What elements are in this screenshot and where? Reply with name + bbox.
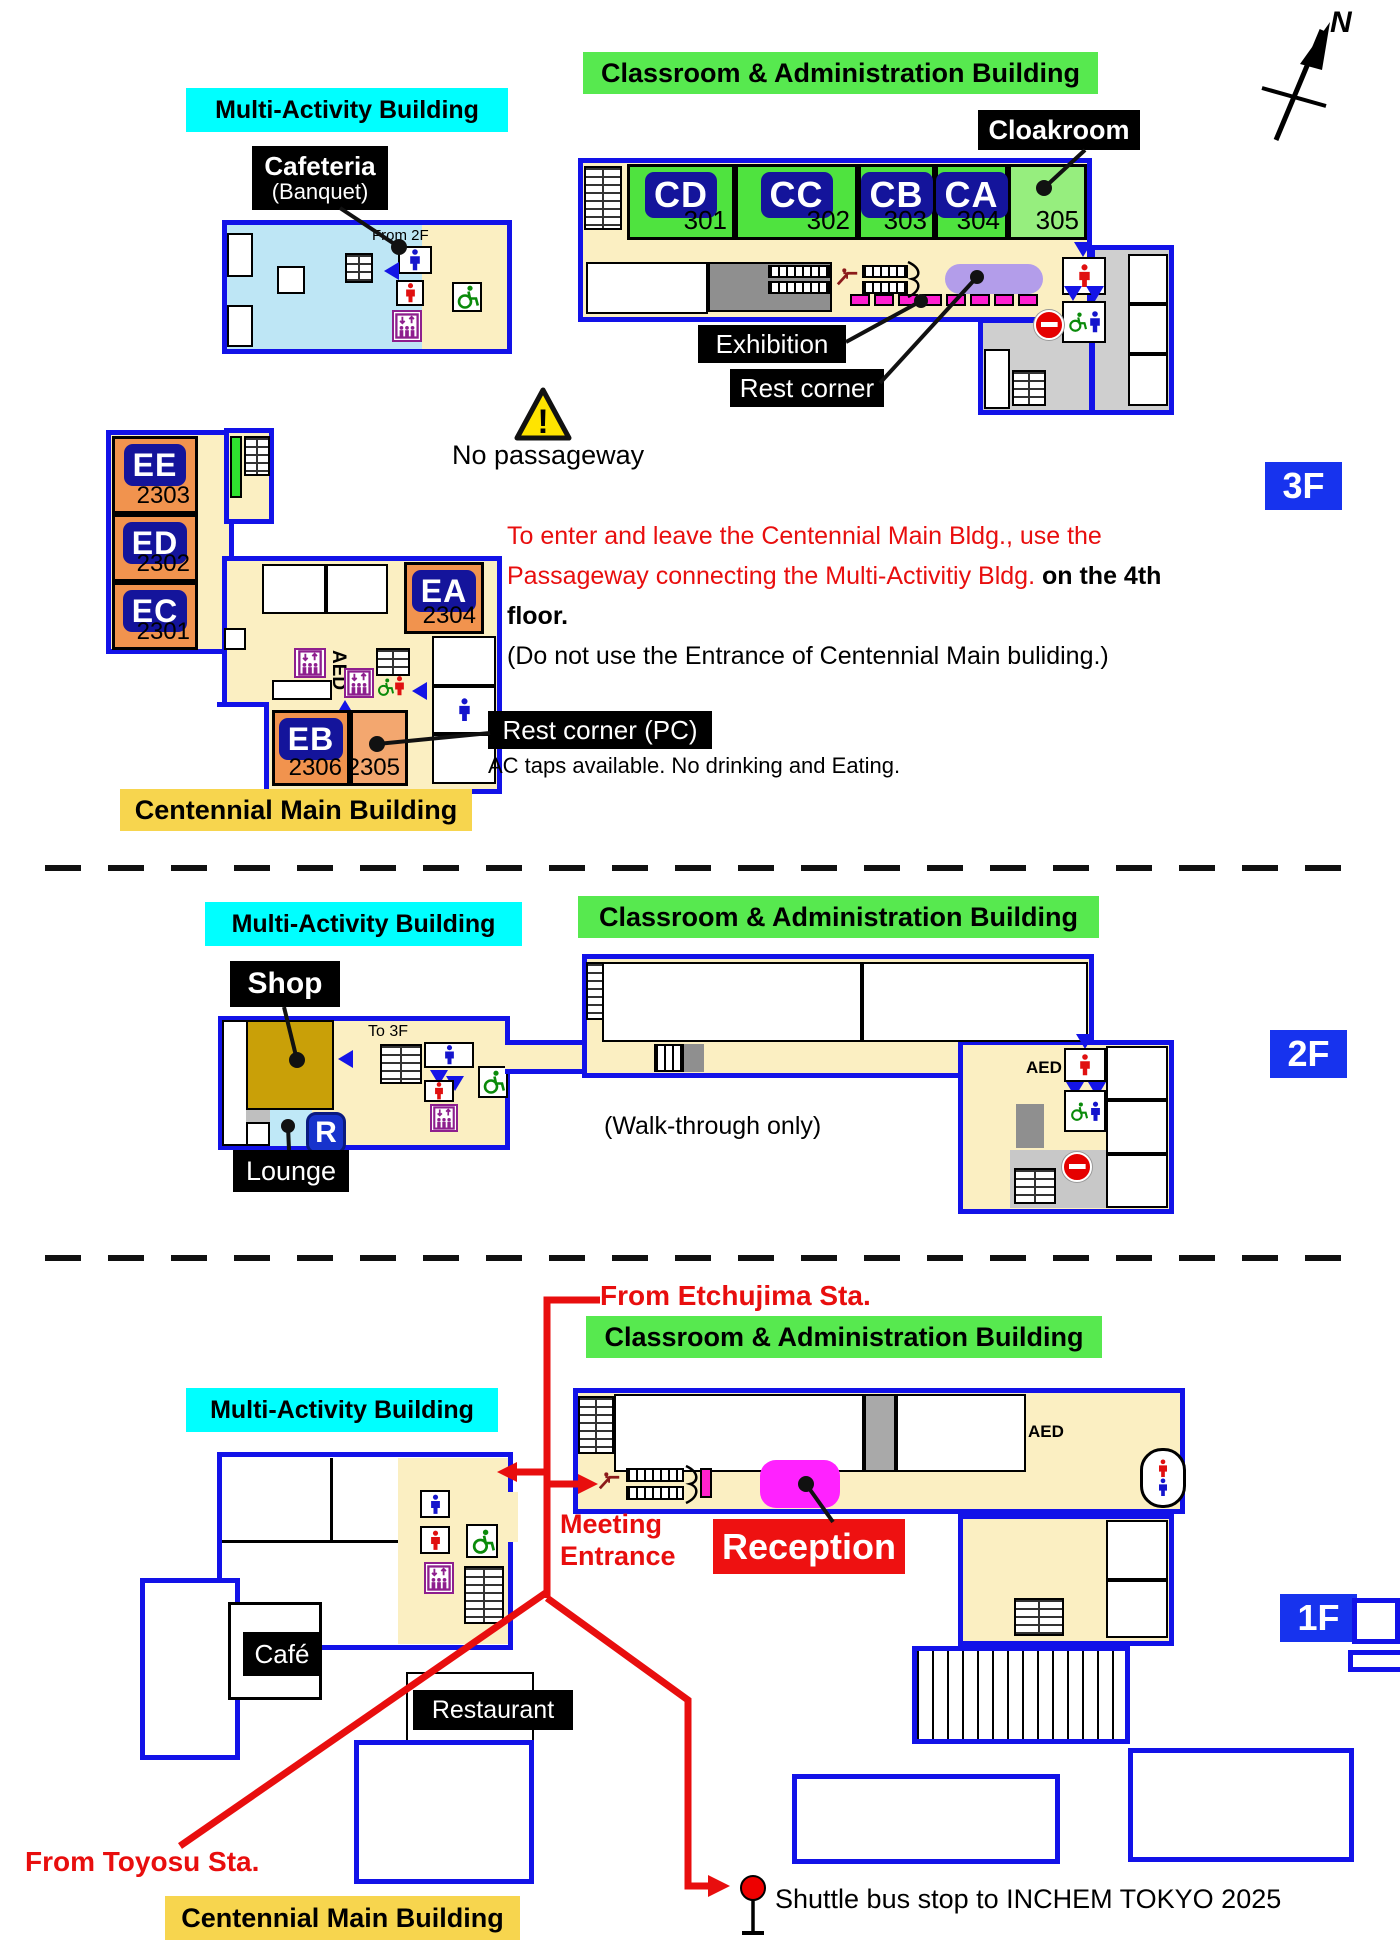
room-partition (432, 734, 496, 784)
entrance-arrow-icon (1074, 242, 1092, 257)
entrance-arrow-icon (1076, 1034, 1094, 1049)
service-strip (864, 1394, 896, 1472)
exhibition-table (970, 294, 990, 306)
room-cd: CD 301 (627, 164, 735, 240)
entrance-arrow-icon (338, 1050, 353, 1068)
entrance-arrow-icon (1086, 286, 1104, 301)
wall-line (330, 1458, 333, 1543)
escalator-icon (836, 264, 860, 293)
elevator-icon (344, 668, 374, 698)
cafeteria-label: Cafeteria (Banquet) (252, 146, 388, 210)
womens-restroom-icon (1064, 1048, 1106, 1082)
stairs-icon (244, 436, 270, 476)
exterior-staircase (912, 1646, 1130, 1744)
meeting-entrance-text: Meeting Entrance (560, 1508, 676, 1572)
restroom-sign-1f (1140, 1448, 1186, 1508)
exterior-structure (140, 1578, 240, 1760)
mens-restroom-icon (420, 1490, 450, 1518)
north-arrow-icon: N (1262, 6, 1353, 140)
meeting-entrance-line2: Entrance (560, 1540, 676, 1572)
lounge-label: Lounge (233, 1150, 349, 1192)
walk-through-text: (Walk-through only) (604, 1112, 821, 1141)
entrance-arrow-icon (412, 682, 427, 700)
room-partition (224, 628, 246, 650)
room-partition (1128, 304, 1168, 354)
exterior-structure (1352, 1598, 1400, 1644)
womens-restroom-icon (396, 280, 424, 306)
room-ec: EC 2301 (112, 582, 198, 650)
room-2305-number: 2305 (347, 754, 400, 782)
passageway-notice: To enter and leave the Centennial Main B… (507, 516, 1227, 676)
notice-line-1: To enter and leave the Centennial Main B… (507, 516, 1227, 556)
classroom-admin-label-1f: Classroom & Administration Building (586, 1316, 1102, 1358)
multi-activity-label-3f: Multi-Activity Building (186, 88, 508, 132)
multi-activity-label-2f: Multi-Activity Building (205, 902, 522, 946)
stairs-flight (862, 281, 908, 294)
stairs-flight (862, 265, 908, 278)
cloakroom-label: Cloakroom (978, 110, 1140, 150)
room-partition (602, 962, 862, 1042)
bus-stop-icon (741, 1876, 765, 1933)
womens-restroom-icon (394, 676, 405, 701)
room-partition (326, 564, 388, 614)
cafeteria-table (277, 266, 305, 294)
escalator-icon (598, 1468, 622, 1497)
wall-line (222, 1540, 398, 1543)
elevator-shaft (230, 436, 242, 498)
room-ec-number: 2301 (137, 618, 190, 646)
cafeteria-title: Cafeteria (264, 152, 375, 181)
room-ea-number: 2304 (423, 602, 476, 630)
stairs-flight (626, 1468, 684, 1482)
to-3f-text: To 3F (368, 1023, 408, 1041)
notice-line-3: (Do not use the Entrance of Centennial M… (507, 636, 1227, 676)
exterior-structure (1128, 1748, 1354, 1862)
stairs-icon (584, 166, 622, 230)
notice-line-2-red: Passageway connecting the Multi-Activiti… (507, 562, 1042, 590)
door-marker (700, 1468, 712, 1498)
stairs-flight (768, 265, 830, 278)
reception-desk (760, 1460, 840, 1508)
room-partition (896, 1394, 1026, 1472)
svg-text:N: N (1330, 6, 1353, 39)
room-partition (246, 1122, 270, 1146)
entrance-arrow-icon (1064, 286, 1082, 301)
room-2305-rest-corner-pc: 2305 (350, 710, 408, 786)
room-partition (1128, 254, 1168, 304)
room-cb-number: 303 (884, 205, 927, 236)
entrance-gap (506, 1492, 518, 1542)
room-ee-plate: EE (124, 444, 187, 486)
room-ca: CA 304 (935, 164, 1008, 240)
room-eb: EB 2306 (272, 710, 350, 786)
accessible-mens-restroom-icon (1064, 1090, 1106, 1132)
elevator-icon (392, 310, 422, 342)
centennial-label-1f: Centennial Main Building (165, 1896, 520, 1940)
elevator-icon (430, 1104, 458, 1132)
mens-restroom-icon (432, 686, 496, 734)
elevator-icon (294, 648, 326, 678)
floor-badge-2f: 2F (1270, 1030, 1347, 1078)
restaurant-r-badge: R (306, 1112, 346, 1154)
room-305-number: 305 (1036, 205, 1079, 236)
cafe-label: Café (243, 1632, 321, 1676)
room-partition (1106, 1046, 1168, 1100)
from-toyosu-text: From Toyosu Sta. (25, 1846, 259, 1878)
room-cc: CC 302 (735, 164, 858, 240)
room-ee: EE 2303 (112, 436, 198, 514)
stairs-icon (376, 648, 410, 676)
room-partition (862, 962, 1088, 1042)
stairs-flight (768, 281, 830, 294)
meeting-entrance-line1: Meeting (560, 1508, 676, 1540)
service-room (1016, 1104, 1044, 1148)
rest-corner-pc-label: Rest corner (PC) (488, 711, 712, 749)
exhibition-table (1018, 294, 1038, 306)
connector-corridor-2f (505, 1040, 587, 1074)
shop-area (246, 1020, 334, 1110)
room-partition (227, 233, 253, 277)
entrance-arrow-icon (384, 262, 399, 280)
reception-label: Reception (713, 1519, 905, 1574)
from-etchujima-text: From Etchujima Sta. (600, 1280, 871, 1312)
mens-restroom-icon (398, 246, 432, 274)
room-partition (1106, 1100, 1168, 1154)
room-partition (1106, 1154, 1168, 1208)
no-entry-icon (1062, 1152, 1092, 1182)
restaurant-building-lower (354, 1740, 534, 1884)
stairs-icon (578, 1396, 614, 1454)
exhibition-table (994, 294, 1014, 306)
wheelchair-icon (452, 282, 482, 312)
stairs-icon (1014, 1598, 1064, 1636)
room-partition (586, 262, 708, 314)
stairs-landing (684, 1044, 704, 1072)
room-cc-number: 302 (807, 205, 850, 236)
elevator-icon (424, 1562, 454, 1594)
aed-text-1f: AED (1028, 1422, 1064, 1442)
exhibition-table (946, 294, 966, 306)
shop-label: Shop (230, 961, 340, 1007)
room-partition (222, 1020, 248, 1146)
wheelchair-icon (376, 678, 394, 701)
svg-text:!: ! (537, 403, 548, 441)
accessible-mens-restroom-icon (1062, 301, 1106, 343)
no-passageway-text: No passageway (452, 440, 644, 471)
room-partition (246, 1110, 270, 1122)
stairs-icon (464, 1566, 504, 1624)
exterior-structure (792, 1774, 1060, 1864)
wheelchair-icon (466, 1524, 498, 1558)
room-cd-number: 301 (684, 205, 727, 236)
exhibition-label: Exhibition (698, 325, 846, 363)
room-ee-number: 2303 (137, 482, 190, 510)
room-305-cloakroom: 305 (1008, 164, 1087, 240)
stairs-icon (345, 253, 373, 283)
warning-icon: ! (517, 390, 569, 441)
stairs-flight (654, 1044, 684, 1072)
centennial-label-3f: Centennial Main Building (120, 789, 472, 831)
room-partition (432, 636, 496, 686)
room-cb: CB 303 (858, 164, 935, 240)
multi-activity-label-1f: Multi-Activity Building (186, 1388, 498, 1432)
notice-line-2: Passageway connecting the Multi-Activiti… (507, 556, 1227, 636)
stairs-flight (626, 1486, 684, 1500)
building-notch (217, 702, 269, 799)
stairs-icon (1012, 370, 1046, 406)
room-eb-number: 2306 (289, 754, 342, 782)
room-partition (1106, 1580, 1168, 1638)
room-ca-number: 304 (957, 205, 1000, 236)
exterior-structure (1348, 1650, 1400, 1672)
exhibition-table (850, 294, 870, 306)
no-entry-icon (1034, 310, 1064, 340)
rest-corner-sofa (945, 264, 1043, 294)
room-partition (1106, 1520, 1168, 1580)
restaurant-label: Restaurant (413, 1690, 573, 1730)
room-partition (272, 680, 332, 700)
wheelchair-icon (478, 1066, 508, 1098)
rest-corner-label: Rest corner (730, 369, 884, 407)
mens-restroom-icon (424, 1042, 474, 1068)
exhibition-table (922, 294, 942, 306)
room-partition (1128, 354, 1168, 406)
classroom-admin-label-3f: Classroom & Administration Building (583, 52, 1098, 94)
room-ea: EA 2304 (404, 562, 484, 634)
room-ed: ED 2302 (112, 514, 198, 582)
aed-text-2f: AED (1026, 1058, 1062, 1078)
from-2f-text: From 2F (372, 227, 429, 244)
stairs-icon (1014, 1168, 1056, 1204)
womens-restroom-icon (424, 1080, 454, 1102)
room-partition (227, 305, 253, 347)
room-partition (984, 349, 1010, 409)
banquet-subtitle: (Banquet) (272, 180, 369, 204)
room-ed-number: 2302 (137, 550, 190, 578)
venue-floor-map: From 2F CD 301 CC 302 CB 303 CA 304 305 (0, 0, 1400, 1950)
floor-badge-1f: 1F (1280, 1594, 1357, 1642)
room-partition (262, 564, 326, 614)
womens-restroom-icon (420, 1526, 450, 1554)
classroom-admin-label-2f: Classroom & Administration Building (578, 896, 1099, 938)
floor-badge-3f: 3F (1265, 462, 1342, 510)
shuttle-bus-text: Shuttle bus stop to INCHEM TOKYO 2025 (775, 1884, 1281, 1915)
exhibition-table (898, 294, 918, 306)
rest-corner-pc-note: AC taps available. No drinking and Eatin… (488, 753, 900, 779)
exhibition-table (874, 294, 894, 306)
stairs-icon (380, 1044, 422, 1084)
